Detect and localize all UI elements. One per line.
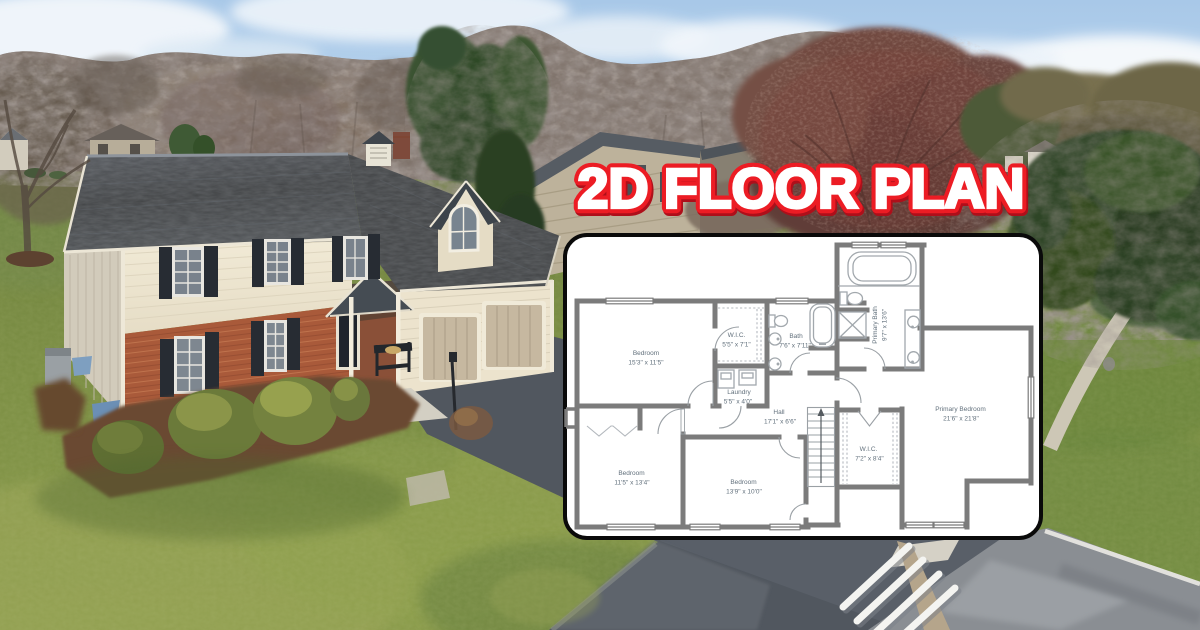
svg-text:Hall: Hall — [773, 409, 785, 416]
svg-text:7'6" x 7'11": 7'6" x 7'11" — [779, 343, 811, 350]
svg-text:5'5" x 4'0": 5'5" x 4'0" — [724, 399, 753, 406]
svg-text:9'7" x 13'6": 9'7" x 13'6" — [882, 308, 889, 341]
svg-text:Primary Bath: Primary Bath — [872, 306, 879, 344]
svg-text:5'5" x 7'1": 5'5" x 7'1" — [722, 342, 751, 349]
svg-text:Bedroom: Bedroom — [633, 350, 659, 357]
svg-text:7'2" x 8'4": 7'2" x 8'4" — [855, 456, 884, 463]
svg-text:11'5" x 13'4": 11'5" x 13'4" — [614, 480, 650, 487]
svg-text:Bedroom: Bedroom — [730, 479, 756, 486]
svg-text:Primary Bedroom: Primary Bedroom — [935, 406, 986, 413]
svg-text:Laundry: Laundry — [727, 389, 751, 396]
svg-text:W.I.C.: W.I.C. — [860, 446, 878, 453]
svg-text:2D FLOOR PLAN: 2D FLOOR PLAN — [578, 157, 1025, 220]
svg-text:Bath: Bath — [789, 333, 803, 340]
svg-text:15'3" x 11'5": 15'3" x 11'5" — [628, 360, 664, 367]
svg-text:Bedroom: Bedroom — [618, 470, 644, 477]
svg-text:13'9" x 10'0": 13'9" x 10'0" — [726, 489, 762, 496]
svg-text:21'6" x 21'8": 21'6" x 21'8" — [943, 416, 979, 423]
svg-text:W.I.C.: W.I.C. — [728, 332, 746, 339]
svg-text:17'1" x 6'6": 17'1" x 6'6" — [764, 419, 797, 426]
